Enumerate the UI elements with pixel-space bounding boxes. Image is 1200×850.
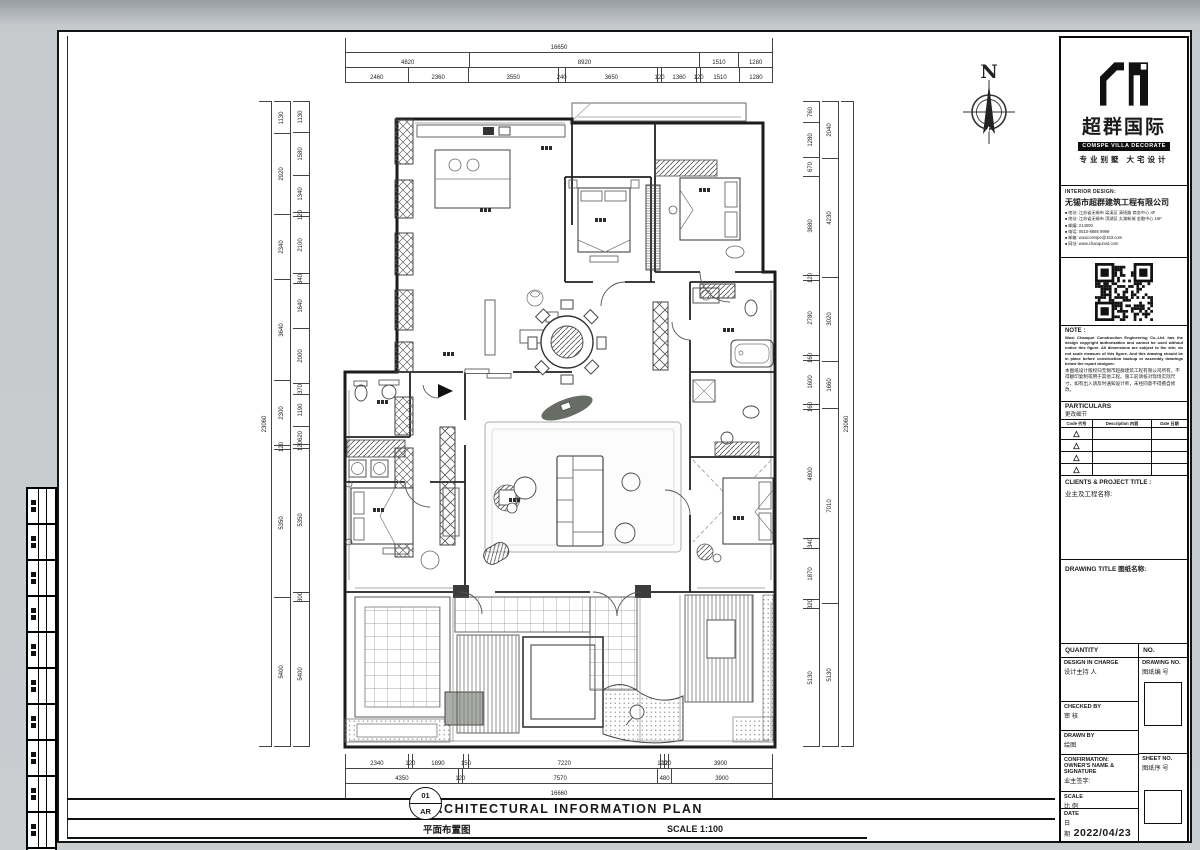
caption-scale: SCALE 1:100 — [667, 824, 723, 834]
clients-block: CLIENTS & PROJECT TITLE : 业主及工程名称: — [1061, 476, 1187, 560]
logo-mark — [1092, 59, 1156, 109]
margin-line — [67, 36, 68, 837]
qr-code — [1061, 258, 1187, 326]
drawing-title-block: DRAWING TITLE 图纸名称: — [1061, 560, 1187, 644]
logo-name-en: COMSPE VILLA DECORATE — [1078, 142, 1170, 151]
particulars-row: △ — [1061, 452, 1187, 464]
confirmation-cell: CONFIRMATION: OWNER'S NAME & SIGNATURE 业… — [1061, 755, 1138, 792]
dimensions-left: 23060 1130292023403640230012053505400 11… — [259, 101, 310, 747]
page-canvas: 16650 4820892015101280 24602360355024036… — [0, 0, 1200, 850]
particulars-table: Code 代号 Description 内容 Date 日期 △ △ — [1061, 419, 1187, 476]
drawing-no-box — [1144, 682, 1182, 726]
caption-number-bubble: 01 AR — [409, 787, 442, 820]
particulars-row: △ — [1061, 464, 1187, 476]
dimensions-right: 7601280670368012027801601600160480034018… — [803, 101, 854, 747]
date-cell: DATE 日期 2022/04/23 — [1061, 809, 1138, 841]
strip-row — [28, 741, 55, 777]
sheet-no-box — [1144, 790, 1182, 824]
particulars-block: PARTICULARS 更改细节 Code 代号 Description 内容 … — [1061, 402, 1187, 476]
revision-triangle-icon: △ — [1073, 442, 1079, 450]
floor-plan — [335, 90, 799, 754]
sheet-no-cell: SHEET NO. 图纸序 号 — [1139, 754, 1187, 841]
particulars-row: △ — [1061, 428, 1187, 440]
strip-row — [28, 813, 55, 849]
revision-triangle-icon: △ — [1073, 454, 1079, 462]
strip-row — [28, 525, 55, 561]
company-name: 无锡市超群建筑工程有限公司 — [1065, 197, 1183, 208]
note-text-en: Wuxi Chaoqun Construction Engineering Co… — [1065, 335, 1183, 366]
note-text-cn: 本图纸设计版权归无锡市超群建筑工程有限公司所有，不得翻印复制或用于其他工程。施工… — [1065, 368, 1183, 393]
strip-row — [28, 597, 55, 633]
floor-plan-svg — [335, 90, 799, 754]
drawing-no-cell: DRAWING NO. 图纸编 号 — [1139, 658, 1187, 754]
date-value: 2022/04/23 — [1074, 827, 1132, 839]
note-block: NOTE : Wuxi Chaoqun Construction Enginee… — [1061, 326, 1187, 402]
interior-design-heading: INTERIOR DESIGN: — [1065, 189, 1183, 195]
scale-cell: SCALE 比 例 — [1061, 792, 1138, 809]
signature-grid: DESIGN IN CHARGE 设计主持 人 CHECKED BY 审 核 D… — [1061, 658, 1187, 841]
strip-row — [28, 489, 55, 525]
dimensions-top: 16650 4820892015101280 24602360355024036… — [345, 38, 773, 83]
note-heading: NOTE : — [1065, 328, 1183, 334]
north-label-glyph: N — [980, 61, 997, 83]
caption-title-en: ARCHITECTURAL INFORMATION PLAN — [423, 802, 703, 816]
strip-row — [28, 633, 55, 669]
strip-row — [28, 561, 55, 597]
particulars-sub: 更改细节 — [1061, 410, 1187, 418]
company-logo: 超群国际 COMSPE VILLA DECORATE 专业别墅 大宅设计 — [1061, 38, 1187, 186]
revision-triangle-icon: △ — [1073, 466, 1079, 474]
particulars-row: △ — [1061, 440, 1187, 452]
caption-number: 01 — [410, 788, 441, 804]
strip-row — [28, 705, 55, 741]
adjacent-sheet-strip — [26, 487, 57, 850]
caption-code: AR — [410, 804, 441, 819]
title-block: 超群国际 COMSPE VILLA DECORATE 专业别墅 大宅设计 INT… — [1059, 36, 1189, 843]
interior-design-block: INTERIOR DESIGN: 无锡市超群建筑工程有限公司 地址: 江苏省无锡… — [1061, 186, 1187, 258]
strip-row — [28, 777, 55, 813]
plan-caption: ARCHITECTURAL INFORMATION PLAN 平面布置图 SCA… — [67, 798, 1055, 839]
revision-triangle-icon: △ — [1073, 430, 1079, 438]
drawing-sheet: 16650 4820892015101280 24602360355024036… — [57, 30, 1192, 843]
strip-row — [28, 669, 55, 705]
particulars-heading: PARTICULARS — [1061, 403, 1187, 410]
caption-title-cn: 平面布置图 — [423, 822, 471, 836]
design-in-charge-cell: DESIGN IN CHARGE 设计主持 人 — [1061, 658, 1138, 702]
logo-name-cn: 超群国际 — [1082, 112, 1166, 139]
north-compass: N — [960, 60, 1018, 148]
quantity-row: QUANTITY NO. — [1061, 644, 1187, 658]
drawn-by-cell: DRAWN BY 绘图 — [1061, 731, 1138, 755]
logo-tagline: 专业别墅 大宅设计 — [1079, 154, 1168, 165]
checked-by-cell: CHECKED BY 审 核 — [1061, 702, 1138, 732]
